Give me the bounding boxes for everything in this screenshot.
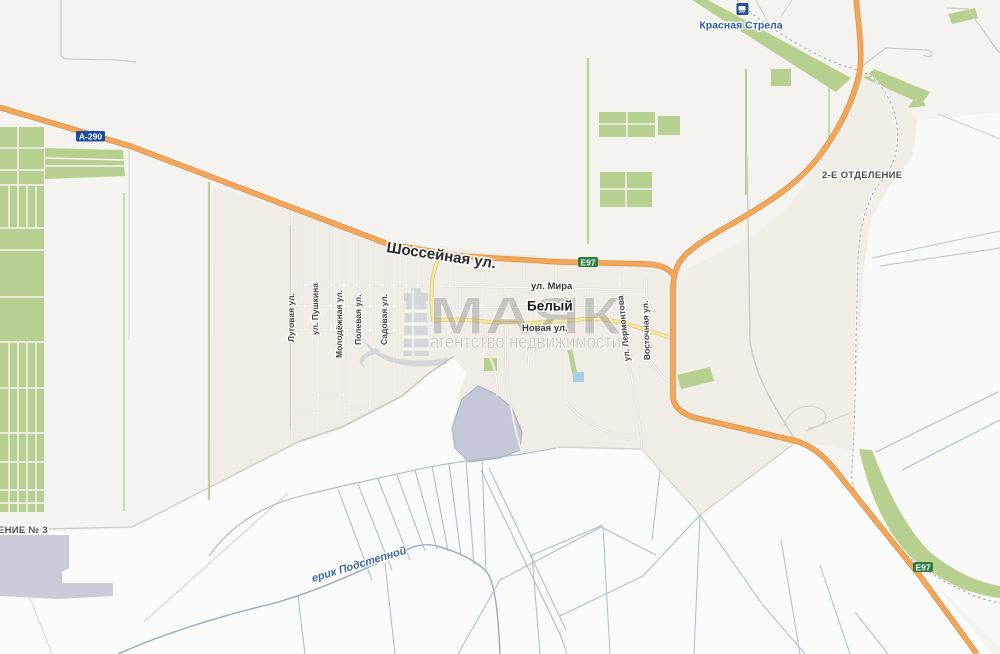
svg-text:Е97: Е97 xyxy=(915,563,930,573)
svg-text:ЕНИЕ № 3: ЕНИЕ № 3 xyxy=(0,525,48,536)
svg-text:А-290: А-290 xyxy=(79,132,102,142)
svg-text:ул. Пушкина: ул. Пушкина xyxy=(310,283,320,335)
svg-text:2-Е ОТДЕЛЕНИЕ: 2-Е ОТДЕЛЕНИЕ xyxy=(822,170,902,181)
svg-text:Е97: Е97 xyxy=(580,258,595,268)
svg-text:Восточная ул.: Восточная ул. xyxy=(640,300,652,360)
svg-text:Полевая ул.: Полевая ул. xyxy=(353,294,363,345)
svg-text:Садовая ул.: Садовая ул. xyxy=(379,294,389,345)
svg-text:Новая ул.: Новая ул. xyxy=(522,323,568,334)
svg-text:ул. Мира: ул. Мира xyxy=(531,281,573,292)
svg-text:агентство недвижимости: агентство недвижимости xyxy=(430,332,621,353)
svg-text:Красная Стрела: Красная Стрела xyxy=(699,20,782,32)
svg-text:Молодёжная ул.: Молодёжная ул. xyxy=(334,290,344,358)
svg-text:Белый: Белый xyxy=(527,299,573,314)
svg-text:Луговая ул.: Луговая ул. xyxy=(286,293,296,342)
